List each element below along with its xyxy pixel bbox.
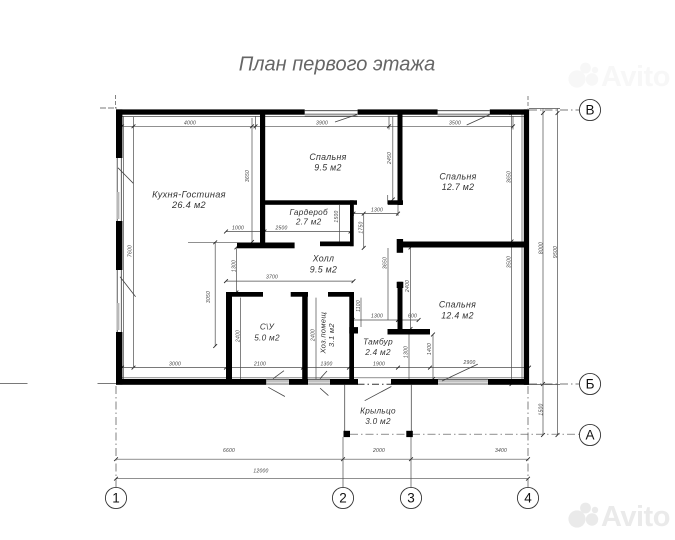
svg-text:3650: 3650 [507,171,513,183]
svg-text:1300: 1300 [232,260,238,272]
svg-text:Крыльцо: Крыльцо [360,407,396,416]
svg-text:3900: 3900 [316,120,328,126]
svg-text:5.0 м2: 5.0 м2 [254,334,280,343]
svg-text:1: 1 [112,491,120,506]
svg-text:1500: 1500 [334,210,340,222]
svg-text:План первого этажа: План первого этажа [239,54,435,76]
svg-text:12000: 12000 [253,468,268,474]
svg-text:4000: 4000 [184,120,196,126]
svg-text:6600: 6600 [223,448,235,454]
svg-text:3050: 3050 [206,291,212,303]
svg-text:1100: 1100 [356,300,362,312]
svg-text:600: 600 [408,313,417,319]
svg-text:3.1 м2: 3.1 м2 [327,323,336,347]
svg-text:1300: 1300 [371,207,383,213]
svg-text:2500: 2500 [274,225,287,231]
svg-text:2400: 2400 [236,330,242,343]
svg-text:3500: 3500 [507,256,513,268]
svg-text:8000: 8000 [539,242,545,254]
svg-text:2900: 2900 [462,360,475,366]
svg-text:2000: 2000 [372,448,385,454]
svg-text:3650: 3650 [383,257,389,269]
svg-text:12.7 м2: 12.7 м2 [442,182,475,192]
svg-text:26.4 м2: 26.4 м2 [171,200,206,210]
svg-text:1300: 1300 [404,346,410,358]
svg-text:1300: 1300 [320,361,332,367]
svg-text:2.4 м2: 2.4 м2 [364,348,391,357]
svg-text:Гардероб: Гардероб [289,208,328,217]
svg-text:Холл: Холл [312,253,335,263]
svg-text:3700: 3700 [266,274,278,280]
svg-text:Avito: Avito [601,61,670,93]
svg-text:3000: 3000 [169,361,181,367]
svg-text:1400: 1400 [427,343,433,355]
svg-text:2450: 2450 [387,152,393,165]
svg-text:2: 2 [339,491,347,506]
svg-text:9.5 м2: 9.5 м2 [314,163,341,173]
svg-text:1300: 1300 [371,313,383,319]
svg-text:1750: 1750 [359,221,365,233]
svg-text:А: А [585,428,594,443]
svg-text:Кухня-Гостиная: Кухня-Гостиная [152,190,226,200]
svg-text:1000: 1000 [232,225,244,231]
svg-text:2100: 2100 [253,361,266,367]
svg-text:3500: 3500 [449,120,461,126]
svg-text:Тамбур: Тамбур [363,338,393,347]
svg-text:Спальня: Спальня [439,171,476,181]
svg-text:3400: 3400 [495,448,507,454]
svg-text:2400: 2400 [405,280,411,293]
svg-text:1500: 1500 [539,403,545,415]
svg-text:12.4 м2: 12.4 м2 [441,310,474,320]
svg-text:С\У: С\У [260,323,275,332]
svg-text:3: 3 [407,491,415,506]
svg-text:9500: 9500 [553,246,559,258]
svg-text:3.0 м2: 3.0 м2 [365,417,391,426]
svg-text:Спальня: Спальня [439,299,476,309]
svg-text:Б: Б [586,377,595,392]
svg-text:1900: 1900 [373,361,385,367]
svg-text:2400: 2400 [311,329,317,342]
svg-text:Avito: Avito [601,501,670,533]
svg-text:3650: 3650 [245,170,251,182]
svg-text:2.7 м2: 2.7 м2 [295,218,322,227]
svg-text:7600: 7600 [128,245,134,257]
svg-text:9.5 м2: 9.5 м2 [310,264,337,274]
svg-text:Спальня: Спальня [309,152,346,162]
svg-text:В: В [585,103,594,118]
svg-text:4: 4 [524,491,532,506]
